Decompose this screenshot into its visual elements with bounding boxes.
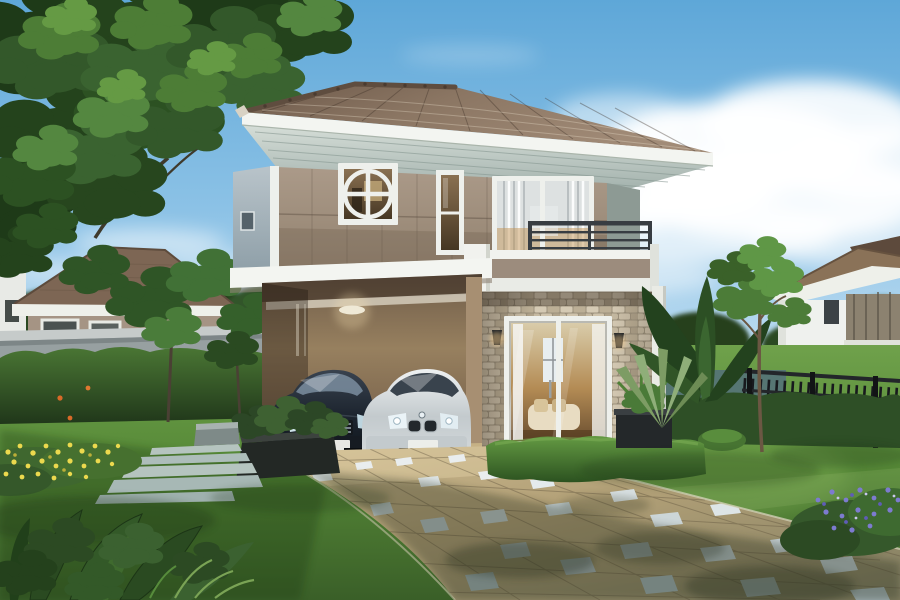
narrow-window bbox=[436, 170, 464, 255]
circle-window bbox=[338, 163, 398, 225]
carport-ceiling-lamp bbox=[339, 306, 365, 315]
scene-canvas bbox=[0, 0, 900, 600]
hedge-right bbox=[640, 392, 900, 448]
side-return-wall bbox=[607, 183, 640, 256]
side-vent-window bbox=[241, 212, 254, 230]
silver-sedan-grille bbox=[408, 420, 421, 432]
balcony-band bbox=[490, 259, 652, 278]
patio-glass-door bbox=[504, 316, 612, 448]
render-image bbox=[0, 0, 900, 600]
